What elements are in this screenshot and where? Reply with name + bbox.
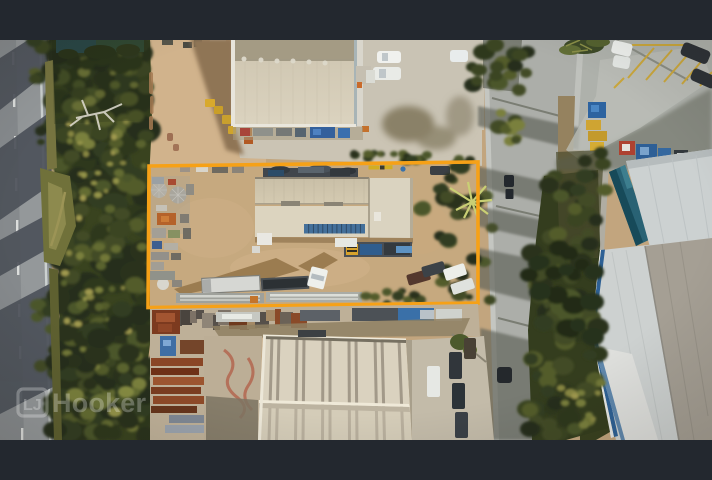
svg-text:LJ: LJ: [23, 397, 42, 414]
svg-text:Hooker: Hooker: [52, 388, 147, 418]
